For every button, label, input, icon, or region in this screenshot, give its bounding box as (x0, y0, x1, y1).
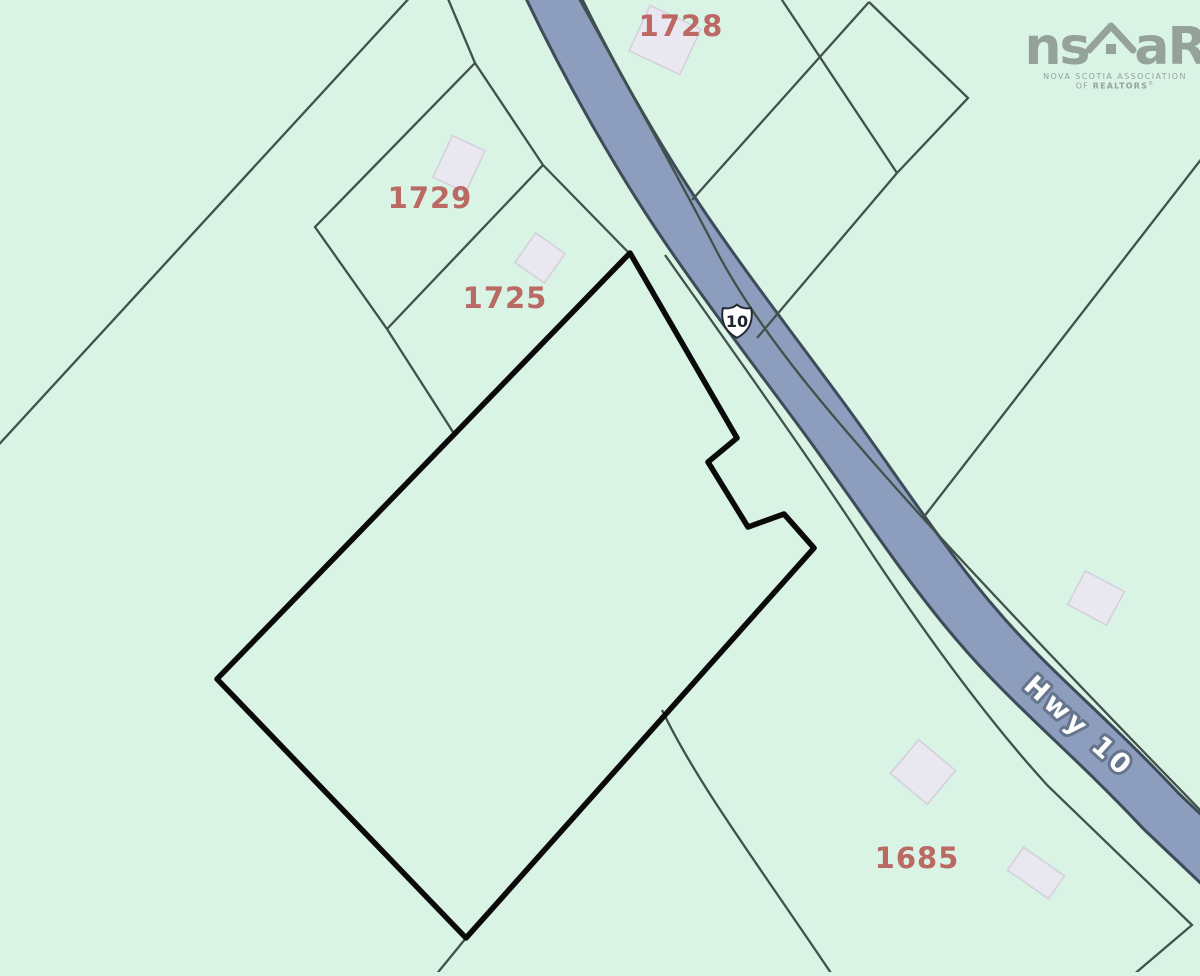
nsar-tagline-line2: OF REALTORS® (1030, 81, 1200, 91)
registered-mark: ® (1148, 81, 1154, 87)
nsar-wordmark-ar: aR (1134, 27, 1200, 68)
parcel-label-1729: 1729 (388, 181, 473, 215)
parcel-label-1728: 1728 (639, 9, 724, 43)
parcel-map-svg: 1728 1729 1725 1685 Hwy 10 10 (0, 0, 1200, 972)
parcel-label-1725: 1725 (463, 281, 548, 315)
parcel-label-1685: 1685 (875, 841, 960, 875)
nsar-logo: ns aR NOVA SCOTIA ASSOCIATION OF REALTOR… (1030, 18, 1200, 90)
nsar-wordmark: ns aR (1030, 18, 1200, 68)
route-shield-number: 10 (726, 312, 748, 331)
map-background (0, 0, 1200, 972)
nsar-wordmark-ns: ns (1024, 27, 1088, 68)
nsar-house-icon (1085, 18, 1137, 66)
parcel-map-canvas[interactable]: 1728 1729 1725 1685 Hwy 10 10 (0, 0, 1200, 972)
nsar-tagline-line1: NOVA SCOTIA ASSOCIATION (1030, 72, 1200, 81)
